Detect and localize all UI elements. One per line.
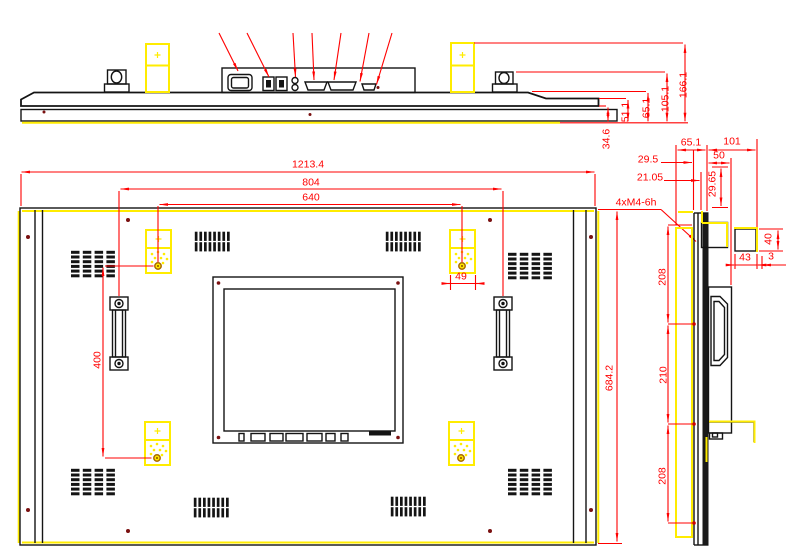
vent-grille — [194, 498, 229, 518]
dim-label-overall-width: 1213.4 — [292, 160, 324, 171]
dim-label-pitch-top: 208 — [658, 268, 669, 286]
bracket-detail — [734, 228, 757, 252]
dim-label-speaker-box: 49 — [455, 272, 467, 283]
speaker-box-top-right — [451, 43, 474, 92]
dim-label-43: 43 — [739, 253, 751, 264]
side-module — [709, 287, 732, 439]
dim-label-mount-span-v: 400 — [93, 351, 104, 369]
module-label — [369, 432, 391, 436]
dim-label-65-1-top: 65.1 — [642, 98, 653, 118]
dim-label-50: 50 — [713, 151, 725, 162]
dim-label-pitch-bottom: 208 — [658, 467, 669, 485]
dim-label-depth-panel: 65.1 — [681, 138, 701, 149]
dvi-port — [328, 82, 356, 90]
dim-label-thread-callout: 4xM4-6h — [616, 198, 657, 209]
engineering-drawing-page: 34.6 51.1 65.1 105.1 166.1 1213.4 804 64… — [0, 0, 790, 550]
connector-panel — [222, 68, 415, 93]
side-view-dimensions — [661, 139, 786, 523]
dim-label-166-1: 166.1 — [679, 72, 690, 98]
rear-handle-left — [110, 297, 128, 370]
drawing-canvas — [0, 0, 790, 550]
led-dot — [377, 86, 380, 89]
vga-port — [305, 82, 327, 90]
side-view — [661, 139, 786, 545]
dim-label-29-65: 29.65 — [708, 171, 719, 197]
rear-handle-right — [494, 297, 512, 370]
back-view — [19, 172, 696, 545]
side-glass-highlight — [676, 228, 692, 537]
vent-grille — [508, 253, 552, 279]
top-view-glass — [21, 110, 617, 122]
dim-label-34-6: 34.6 — [602, 129, 613, 149]
handle-bracket-top-right — [493, 72, 518, 92]
dim-label-105-1: 105.1 — [661, 86, 672, 112]
top-view — [21, 33, 688, 123]
vent-grille — [386, 232, 421, 252]
dim-label-40: 40 — [764, 233, 775, 245]
hdmi-port — [362, 84, 376, 90]
speaker-box-top-left — [146, 44, 169, 92]
dim-label-pitch-mid: 210 — [659, 366, 670, 384]
vent-grille — [71, 469, 115, 496]
dim-label-51-1: 51.1 — [621, 102, 632, 122]
dim-label-21-05: 21.05 — [637, 173, 663, 184]
vent-grille — [391, 497, 426, 517]
dim-label-3: 3 — [768, 252, 774, 263]
top-view-chassis — [21, 93, 599, 107]
audio-jack — [292, 78, 298, 84]
back-view-dimensions — [21, 172, 696, 544]
speaker-vesa-box — [449, 422, 474, 465]
dim-label-depth-overall: 101 — [723, 137, 741, 148]
dim-label-handle-span: 804 — [302, 178, 320, 189]
vent-grille — [71, 251, 115, 277]
connector-leader-lines — [219, 33, 392, 85]
electronics-module — [213, 277, 403, 443]
handle-bracket-top-left — [105, 70, 130, 92]
dim-label-mount-span-h: 640 — [302, 193, 320, 204]
module-connectors — [239, 434, 348, 442]
dim-label-29-5: 29.5 — [638, 155, 658, 166]
vent-grille — [195, 232, 230, 252]
vent-grille — [508, 469, 552, 496]
dim-label-overall-height: 684.2 — [605, 365, 616, 391]
side-chassis — [703, 213, 709, 545]
audio-jack — [292, 85, 298, 91]
